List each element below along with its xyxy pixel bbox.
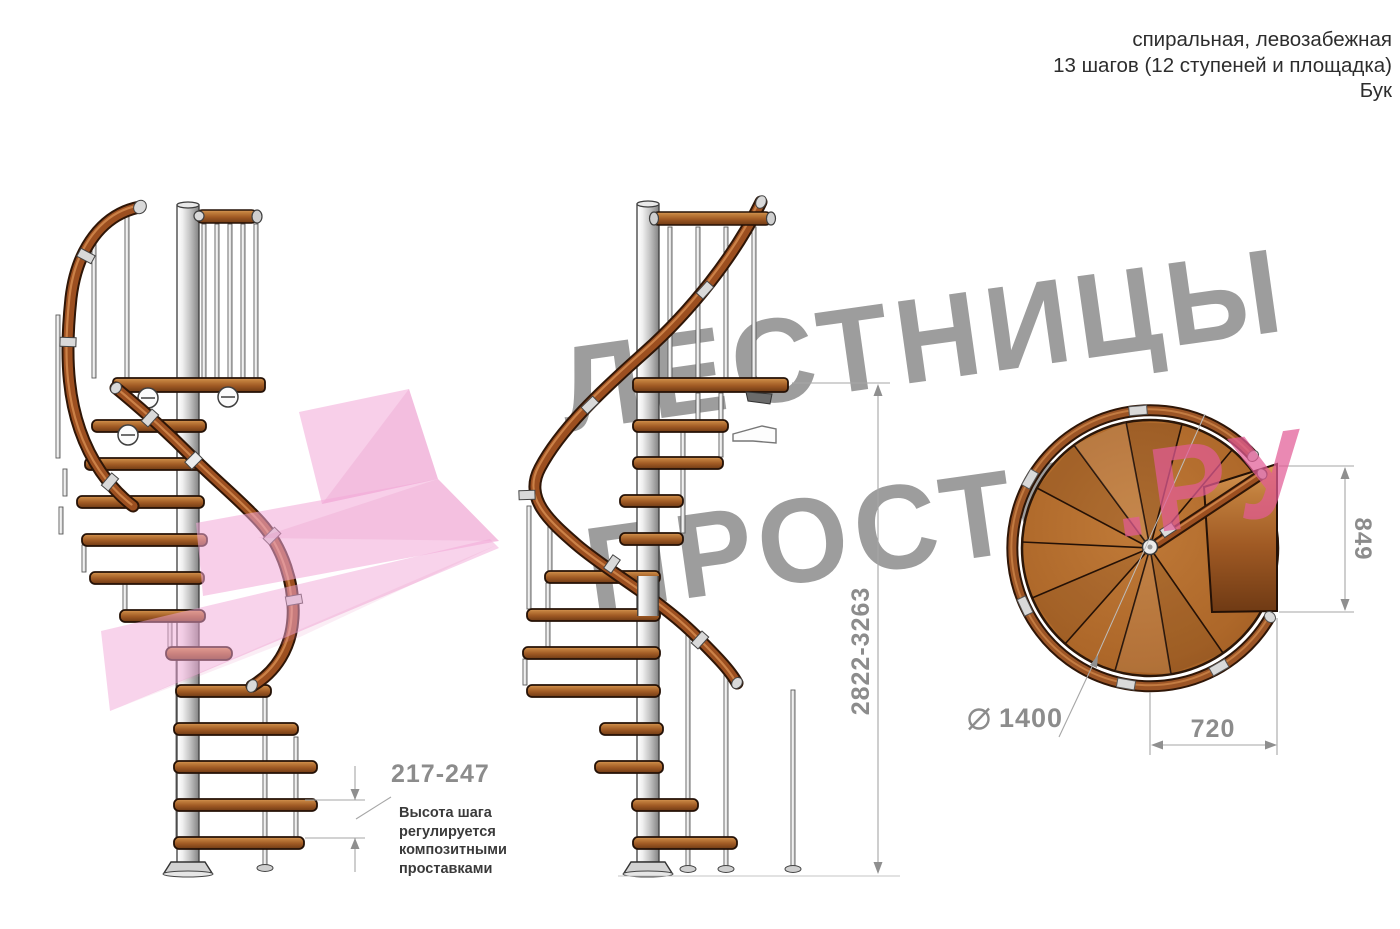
dim-step-height-note: Высота шага регулируется композитными пр…	[399, 804, 507, 878]
dim-diameter-value: 1400	[999, 703, 1063, 734]
spec-material: Бук	[1053, 78, 1392, 104]
dim-total-height: 2822-3263	[841, 551, 881, 751]
title-block: спиральная, левозабежная 13 шагов (12 ст…	[1053, 27, 1392, 104]
dim-diameter: 1400	[966, 703, 1063, 734]
dim-step-height: 217-247	[391, 760, 490, 789]
watermark-arrow	[0, 0, 1400, 929]
spec-type: спиральная, левозабежная	[1053, 27, 1392, 53]
spec-steps: 13 шагов (12 ступеней и площадка)	[1053, 53, 1392, 79]
dim-platform-depth: 849	[1347, 489, 1377, 589]
diameter-icon	[966, 706, 992, 732]
drawing-sheet: ЛЕСТНИЦЫ ПРОСТО.РУ	[0, 0, 1400, 929]
dim-platform-width: 720	[1173, 714, 1253, 744]
